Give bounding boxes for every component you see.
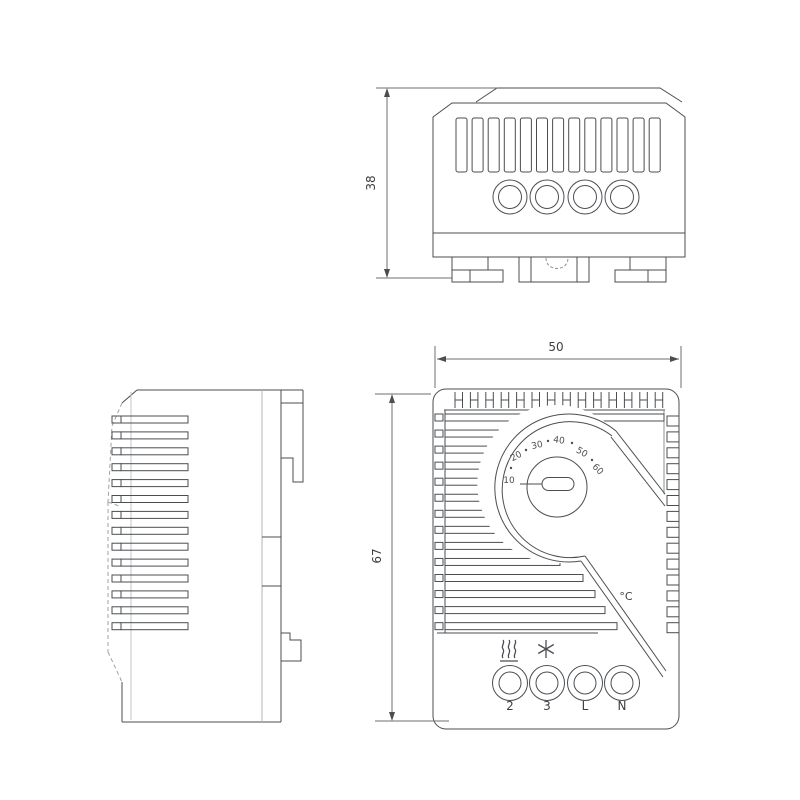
vent-slat-tab <box>112 543 121 550</box>
left-foot-step-line <box>452 270 488 282</box>
width-dimension: 50 <box>435 340 681 388</box>
terminal-label-3: 3 <box>543 699 551 713</box>
arrowhead-up <box>384 88 390 97</box>
scale-label-40: 40 <box>552 435 565 447</box>
vent-slat-tab <box>112 496 121 503</box>
vent-slat-tab <box>112 591 121 598</box>
vent-slat-tab <box>112 432 121 439</box>
depth-dimension-label: 38 <box>364 175 378 190</box>
terminal-label-2: 2 <box>506 699 514 713</box>
din-rail-clip-top <box>281 390 303 482</box>
vent-slat-tab <box>112 607 121 614</box>
side-view <box>108 390 303 722</box>
thermostat-dimension-drawing: 38 <box>0 0 800 800</box>
top-view-body-outline <box>433 103 685 257</box>
scale-tick-dot <box>547 440 549 442</box>
technical-drawing-canvas: 38 <box>0 0 800 800</box>
din-rail-clip-bottom <box>281 633 301 661</box>
scale-tick-dot <box>525 449 527 451</box>
front-view: 10 20 30 40 50 60 °C <box>433 389 679 729</box>
height-dimension-label: 67 <box>370 548 384 563</box>
terminal-label-L: L <box>582 699 589 713</box>
vent-slat-tab <box>112 575 121 582</box>
width-dimension-label: 50 <box>548 340 563 354</box>
side-seam-ticks <box>262 537 281 586</box>
vent-slat-tab <box>112 480 121 487</box>
arrowhead-right <box>670 356 679 362</box>
right-foot-step-line <box>630 270 666 282</box>
scale-label-10: 10 <box>503 476 515 486</box>
vent-slat-tab <box>112 623 121 630</box>
arrowhead-down <box>389 712 395 721</box>
top-view-raised-back <box>476 88 682 102</box>
vent-slat-tab <box>112 559 121 566</box>
scale-tick-dot <box>510 467 512 469</box>
scale-tick-dot <box>591 459 593 461</box>
vent-slat-tab <box>112 511 121 518</box>
arrowhead-up <box>389 394 395 403</box>
arrowhead-down <box>384 269 390 278</box>
scale-tick-dot <box>571 442 573 444</box>
terminal-label-N: N <box>618 699 627 713</box>
side-view-vent-slats <box>112 416 188 630</box>
center-foot-hidden-arc <box>546 258 568 269</box>
center-foot <box>519 257 589 282</box>
center-foot-ribs <box>531 257 577 282</box>
top-view <box>433 88 685 282</box>
arrowhead-left <box>437 356 446 362</box>
side-top-chamfer <box>122 390 137 403</box>
mounting-feet <box>452 257 666 282</box>
vent-slat-tab <box>112 448 121 455</box>
temperature-unit-label: °C <box>619 590 633 603</box>
side-left-hidden-edge <box>108 403 122 682</box>
vent-slat-tab <box>112 416 121 423</box>
vent-slat-tab <box>112 464 121 471</box>
vent-slat-tab <box>112 527 121 534</box>
